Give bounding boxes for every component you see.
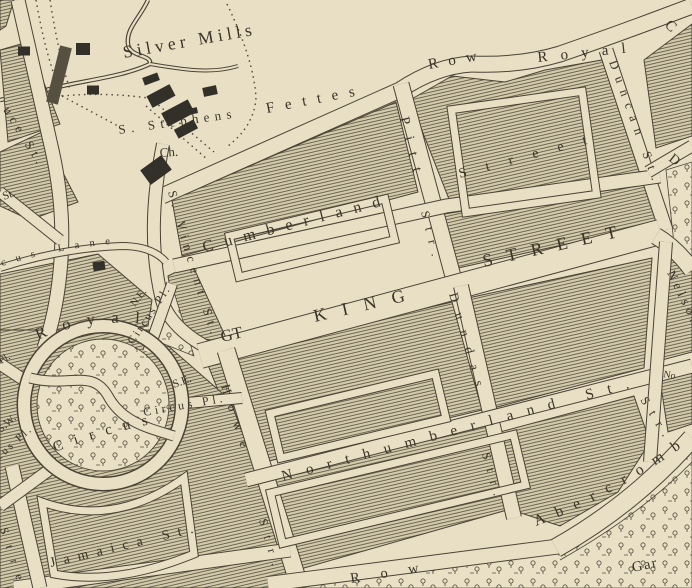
- antique-map: Silver Mills S. Stephens Ch. Fettes Row …: [0, 0, 692, 588]
- building: [18, 47, 30, 56]
- building: [92, 261, 105, 272]
- royal-circus: [24, 326, 182, 484]
- map-canvas: Silver Mills S. Stephens Ch. Fettes Row …: [0, 0, 692, 588]
- building: [87, 86, 99, 95]
- label-ch: Ch.: [159, 144, 178, 160]
- label-no-fragment: No: [662, 369, 676, 382]
- building: [76, 43, 90, 55]
